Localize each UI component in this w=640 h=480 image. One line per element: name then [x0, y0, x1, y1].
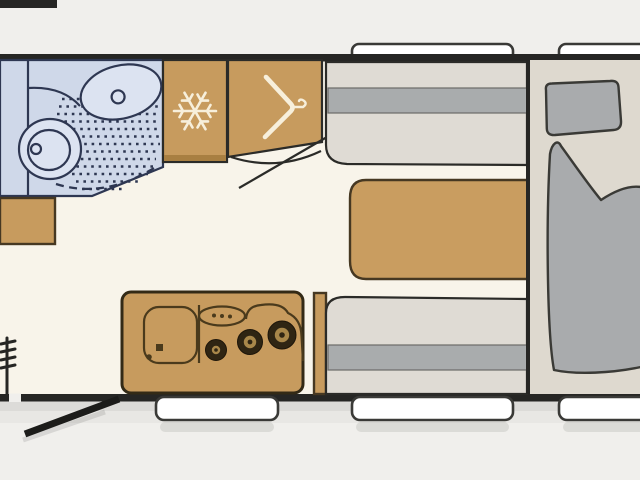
- doorway-gap: [9, 394, 21, 403]
- bed-partition-wall: [526, 60, 530, 394]
- bottom-windows: Window Window Window: [156, 397, 640, 432]
- burner-medium: [238, 330, 263, 355]
- floorplan-svg: Caravan floor plan — top view Window Win…: [0, 0, 640, 480]
- washroom: Washroom with shower, basin and toilet S…: [0, 56, 167, 196]
- roof-rail-fragment: [0, 0, 57, 8]
- window-shadow: [160, 422, 274, 432]
- dinette-table: Dinette table: [350, 180, 528, 279]
- front-cabinet: Front cabinet: [0, 198, 55, 244]
- seat-bottom-stripe: [328, 345, 527, 370]
- burner-large: [268, 321, 296, 349]
- floorplan-stage: Caravan floor plan — top view Window Win…: [0, 0, 640, 480]
- refrigerator-base-strip: [164, 155, 226, 161]
- window-bottom-2: Window: [352, 397, 513, 420]
- double-bed: Double bed with pillow and duvet: [530, 60, 640, 394]
- sink-tap: [146, 354, 152, 360]
- dinette-seat-top: Dinette bench seat: [326, 62, 527, 165]
- hob-knob: [228, 315, 232, 319]
- bed-pillow: [546, 81, 621, 135]
- window-bottom-1: Window: [156, 397, 278, 420]
- dinette-seat-bottom: Dinette bench seat: [326, 297, 527, 394]
- window-shadow: [563, 422, 640, 432]
- sink-drain: [156, 344, 163, 351]
- side-cabinet: Side cabinet: [314, 293, 326, 394]
- window-bottom-3: Window: [559, 397, 640, 420]
- window-shadow: [356, 422, 509, 432]
- toilet: Toilet: [19, 119, 81, 179]
- hob-knob: [220, 314, 224, 318]
- kitchen-unit: Kitchen unit with sink and 3-burner hob …: [122, 292, 303, 393]
- hob-knob: [212, 314, 216, 318]
- refrigerator: Refrigerator: [163, 60, 227, 162]
- burner-small: [206, 340, 227, 361]
- seat-top-stripe: [328, 88, 527, 113]
- wardrobe-body: [228, 60, 322, 157]
